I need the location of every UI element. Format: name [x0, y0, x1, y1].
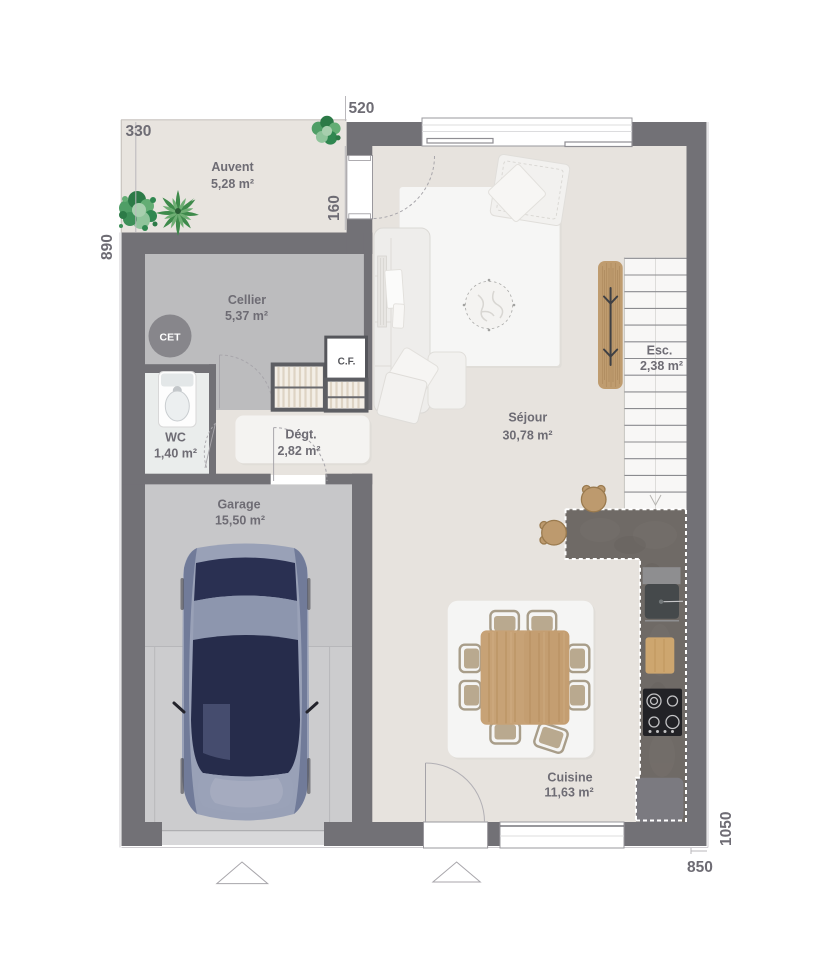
- svg-text:520: 520: [349, 100, 375, 117]
- svg-text:Séjour: Séjour: [508, 411, 547, 425]
- svg-text:890: 890: [99, 234, 116, 260]
- svg-text:30,78 m²: 30,78 m²: [502, 429, 552, 443]
- svg-text:5,37 m²: 5,37 m²: [225, 309, 268, 323]
- svg-text:CET: CET: [160, 332, 182, 344]
- svg-text:5,28 m²: 5,28 m²: [211, 177, 254, 191]
- svg-text:15,50 m²: 15,50 m²: [215, 514, 265, 528]
- svg-text:2,82 m²: 2,82 m²: [277, 444, 320, 458]
- svg-text:Cellier: Cellier: [228, 293, 266, 307]
- svg-text:C.F.: C.F.: [338, 357, 356, 368]
- svg-text:Esc.: Esc.: [647, 344, 673, 358]
- svg-text:Cuisine: Cuisine: [547, 771, 592, 785]
- svg-text:Garage: Garage: [217, 498, 260, 512]
- svg-text:160: 160: [326, 195, 343, 221]
- svg-text:2,38 m²: 2,38 m²: [640, 359, 683, 373]
- svg-text:11,63 m²: 11,63 m²: [544, 786, 593, 800]
- svg-text:1,40 m²: 1,40 m²: [154, 447, 197, 461]
- svg-text:Auvent: Auvent: [211, 160, 254, 174]
- svg-text:WC: WC: [165, 431, 186, 445]
- svg-text:850: 850: [687, 859, 713, 876]
- svg-text:Dégt.: Dégt.: [285, 428, 316, 442]
- svg-text:330: 330: [126, 123, 152, 140]
- svg-text:1050: 1050: [718, 812, 735, 846]
